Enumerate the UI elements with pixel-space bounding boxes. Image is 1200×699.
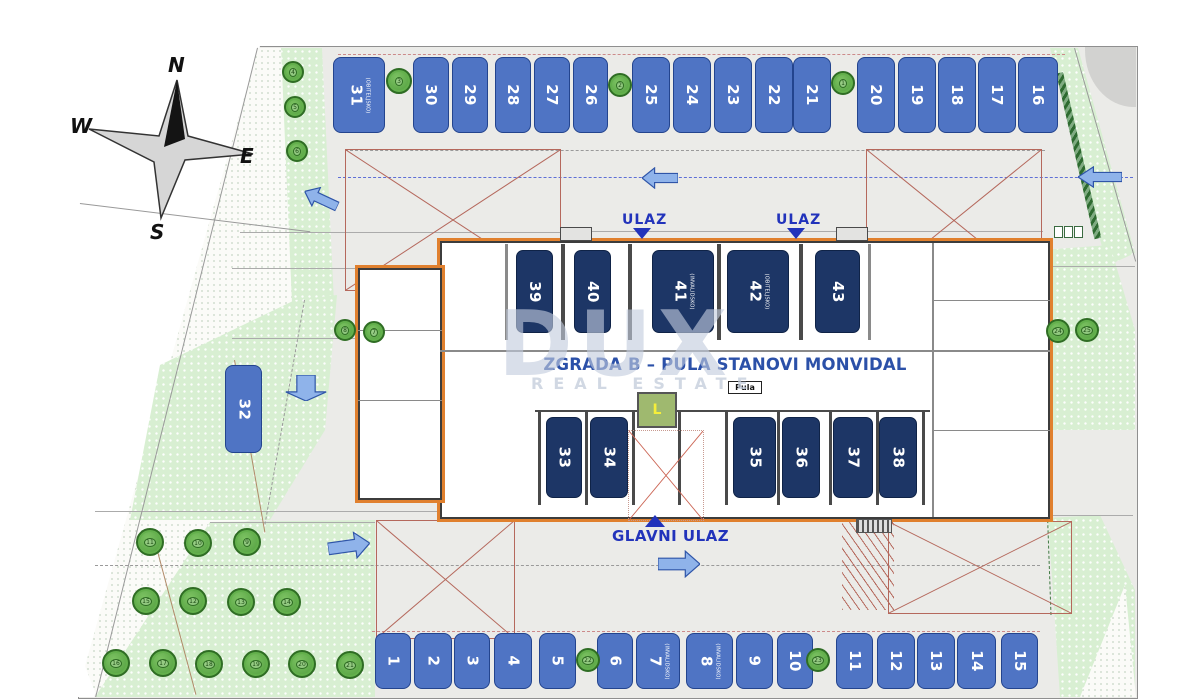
tree-icon: 1 [831,71,855,95]
parking-space: 19 [898,57,936,133]
tree-icon: 22 [576,648,600,672]
garage-space-number: 39 [527,281,542,303]
garage-row-upper: 39 40 (INVALIDSKO)41 (OBITELJSKO)42 43 [0,250,1200,333]
parking-space-number: 25 [643,84,658,106]
parking-space-number: 10 [787,650,802,672]
parking-space: 13 [917,633,955,689]
parking-space-number: 30 [423,84,438,106]
parking-space-number: 4 [505,656,520,667]
tree-icon: 4 [282,61,304,83]
parking-space: 3 [454,633,490,689]
plan-line [338,54,1065,55]
parking-space-number: 3 [464,656,479,667]
parking-row-top: (OBITELJSKO)31 30 29 28 27 26 25 [0,57,1200,133]
parking-space: 25 [632,57,670,133]
tree-icon: 11 [136,528,164,556]
building-name-label: ZGRADA B – PULA STANOVI MONVIDAL [540,355,910,374]
parking-space: 22 [755,57,793,133]
plan-line [210,522,375,523]
glavni-ulaz-label: GLAVNI ULAZ [612,527,729,545]
garage-space: 40 [574,250,611,333]
parking-space-number: 12 [888,650,903,672]
tree-icon: 7 [363,321,385,343]
direction-arrow-icon [642,167,678,189]
parking-space: 24 [673,57,711,133]
tree-icon: 9 [233,528,261,556]
grate [856,519,892,533]
tree-icon: 19 [242,650,270,678]
tree-icon: 17 [149,649,177,677]
parking-space: 14 [957,633,996,689]
tree-icon: 24 [1046,319,1070,343]
parking-space: 20 [857,57,895,133]
parking-space: 26 [573,57,608,133]
parking-space: 12 [877,633,915,689]
tree-number: 3 [395,77,403,86]
parking-space-number: 6 [607,656,622,667]
tree-number: 8 [341,326,349,335]
garage-space: (INVALIDSKO)41 [652,250,714,333]
parking-space-number: 13 [928,650,943,672]
tree-number: 15 [140,597,152,606]
parking-space-number: 14 [969,650,984,672]
parking-space: 29 [452,57,488,133]
parking-space-number: 11 [847,650,862,672]
parking-space-number: 19 [909,84,924,106]
parking-space: 5 [539,633,576,689]
glavni-ulaz-arrow [645,515,665,527]
tree-number: 17 [157,659,169,668]
parking-space: 23 [714,57,752,133]
parking-space-number: 9 [747,656,762,667]
parking-space: 6 [597,633,633,689]
wall [440,350,1050,352]
parking-space: 27 [534,57,570,133]
garage-space: 43 [815,250,860,333]
tree-icon: 5 [284,96,306,118]
parking-space-number: 31 [348,84,363,106]
parking-space-32-row: 32 [0,365,1200,453]
tree-icon: 15 [132,587,160,615]
tree-icon: 12 [179,587,207,615]
parking-space: 32 [225,365,262,453]
parking-space-number: 32 [236,398,251,420]
direction-arrow-icon [284,375,328,401]
parking-space-number: 29 [462,84,477,106]
garage-space-number: 41 [672,281,687,303]
tree-number: 12 [187,597,199,606]
garage-space: 39 [516,250,553,333]
tree-number: 22 [582,656,594,665]
parking-space-number: 28 [505,84,520,106]
tree-number: 20 [296,660,308,669]
tree-number: 4 [289,68,297,77]
parking-space-number: 21 [804,84,819,106]
tree-icon: 20 [288,650,316,678]
parking-space: 18 [938,57,976,133]
parking-space: 1 [375,633,411,689]
parking-space: (OBITELJSKO)31 [333,57,385,133]
parking-space-number: 20 [868,84,883,106]
parking-space-number: 24 [684,84,699,106]
direction-arrow-icon [326,529,371,563]
garage-space-number: 43 [830,281,845,303]
parking-space: 28 [495,57,531,133]
planter-boxes [1054,226,1083,238]
hatch-area [842,522,894,610]
parking-space: 15 [1001,633,1038,689]
parking-space-number: 17 [989,84,1004,106]
parking-space-number: 8 [699,656,714,667]
direction-arrow-icon [1078,166,1122,188]
tree-icon: 14 [273,588,301,616]
parking-space-number: 5 [550,656,565,667]
tree-number: 9 [243,538,251,547]
parking-row-bottom: 1 2 3 4 5 6 (INVALIDSKO)7 [0,633,1200,689]
tree-number: 2 [616,81,624,90]
parking-space: 11 [836,633,873,689]
tree-number: 14 [281,598,293,607]
parking-space-number: 18 [949,84,964,106]
tree-icon: 16 [102,649,130,677]
tree-icon: 21 [336,651,364,679]
tree-number: 5 [291,103,299,112]
garage-space-number: 42 [747,281,762,303]
parking-space: (INVALIDSKO)7 [636,633,680,689]
garage-space-number: 40 [585,281,600,303]
tree-icon: 3 [386,68,412,94]
tree-number: 1 [839,79,847,88]
tree-number: 6 [293,147,301,156]
parking-space: 30 [413,57,449,133]
fire-truck-area [888,521,1072,614]
direction-arrow-icon [658,550,700,578]
tree-number: 21 [344,661,356,670]
compass-label-s: S [150,220,164,244]
parking-space: 4 [494,633,532,689]
parking-space-number: 22 [766,84,781,106]
parking-space: 2 [414,633,452,689]
plan-line [1045,515,1133,516]
tree-number: 11 [144,538,156,547]
parking-space: 17 [978,57,1016,133]
parking-space-number: 23 [725,84,740,106]
tree-number: 24 [1052,327,1064,336]
tree-number: 23 [812,656,824,665]
compass-label-e: E [240,144,254,168]
parking-space-number: 1 [385,656,400,667]
ulaz-label-1: ULAZ [622,212,667,228]
site-plan-page: N W E S [0,0,1200,699]
tree-number: 19 [250,660,262,669]
stair-landing [560,227,592,241]
parking-space: 9 [736,633,773,689]
tree-number: 25 [1081,326,1093,335]
fire-truck-area [376,520,515,639]
stair-landing [836,227,868,241]
parking-space-number: 2 [425,656,440,667]
tree-icon: 25 [1075,318,1099,342]
tree-icon: 23 [806,648,830,672]
parking-space-number: 16 [1030,84,1045,106]
tree-icon: 10 [184,529,212,557]
parking-space-number: 7 [647,656,662,667]
tree-number: 13 [235,598,247,607]
parking-space: 21 [793,57,831,133]
parking-space: 16 [1018,57,1058,133]
tree-icon: 8 [334,319,356,341]
ulaz-label-2: ULAZ [776,212,821,228]
parking-space-number: 26 [583,84,598,106]
parking-space: (INVALIDSKO)8 [686,633,733,689]
tree-number: 7 [370,328,378,337]
tree-icon: 6 [286,140,308,162]
tree-icon: 13 [227,588,255,616]
ulaz-arrow-2 [787,228,805,239]
tree-number: 10 [192,539,204,548]
tree-icon: 2 [608,73,632,97]
tree-number: 16 [110,659,122,668]
parking-space-number: 27 [544,84,559,106]
garage-space: (OBITELJSKO)42 [727,250,789,333]
ulaz-arrow-1 [633,228,651,239]
parking-space-number: 15 [1012,650,1027,672]
parking-space-type: (INVALIDSKO) [715,643,720,679]
tree-icon: 18 [195,650,223,678]
tree-number: 18 [203,660,215,669]
